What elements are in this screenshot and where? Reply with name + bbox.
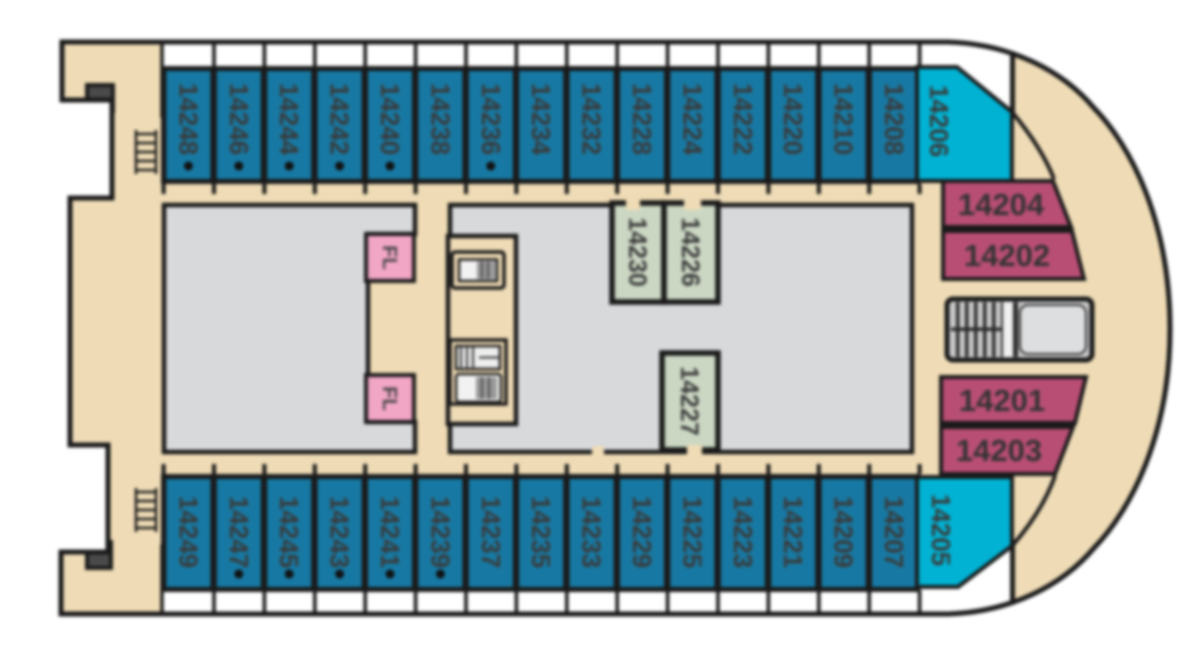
svg-text:14238: 14238 <box>425 83 455 155</box>
svg-text:14229: 14229 <box>627 496 657 568</box>
svg-text:14206: 14206 <box>924 85 954 157</box>
svg-text:14223: 14223 <box>728 496 758 568</box>
svg-text:14208: 14208 <box>879 83 909 155</box>
svg-text:14220: 14220 <box>778 83 808 155</box>
svg-text:14227: 14227 <box>675 366 703 436</box>
svg-text:14237: 14237 <box>476 496 506 568</box>
svg-text:14249: 14249 <box>173 496 203 568</box>
svg-text:14201: 14201 <box>959 383 1045 418</box>
svg-text:14221: 14221 <box>778 496 808 568</box>
svg-text:14243: 14243 <box>325 496 355 568</box>
svg-text:14235: 14235 <box>526 496 556 568</box>
svg-text:14241: 14241 <box>375 496 405 568</box>
svg-text:14234: 14234 <box>526 83 556 156</box>
svg-text:14240: 14240 <box>375 83 405 155</box>
svg-text:14226: 14226 <box>676 217 704 287</box>
svg-text:14222: 14222 <box>728 83 758 155</box>
svg-text:14232: 14232 <box>577 83 607 155</box>
svg-text:14236: 14236 <box>476 83 506 155</box>
svg-text:14246: 14246 <box>224 83 254 155</box>
svg-text:14210: 14210 <box>829 83 859 155</box>
svg-text:14225: 14225 <box>677 496 707 568</box>
svg-text:14205: 14205 <box>926 494 956 566</box>
svg-text:14203: 14203 <box>956 433 1042 468</box>
svg-text:14209: 14209 <box>829 496 859 568</box>
svg-text:14233: 14233 <box>577 496 607 568</box>
svg-text:14202: 14202 <box>964 238 1050 273</box>
svg-text:FL: FL <box>378 386 400 410</box>
svg-text:FL: FL <box>378 245 400 269</box>
svg-text:14248: 14248 <box>173 83 203 155</box>
svg-text:14247: 14247 <box>224 496 254 568</box>
svg-text:14207: 14207 <box>879 496 909 568</box>
svg-text:14230: 14230 <box>623 217 651 287</box>
svg-text:14204: 14204 <box>958 187 1045 222</box>
svg-text:14228: 14228 <box>627 83 657 155</box>
svg-text:14224: 14224 <box>677 83 707 156</box>
svg-text:14245: 14245 <box>274 496 304 568</box>
svg-text:14239: 14239 <box>425 496 455 568</box>
svg-text:14244: 14244 <box>274 83 304 156</box>
svg-text:14242: 14242 <box>325 83 355 155</box>
